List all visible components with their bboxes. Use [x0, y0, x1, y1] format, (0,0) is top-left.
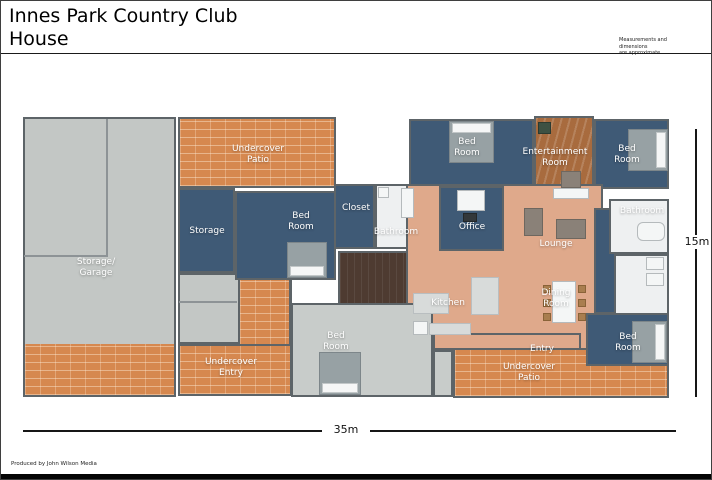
label-bedroom-bottom-middle: Bed Room — [309, 331, 363, 353]
corridor-divider-wall — [179, 301, 237, 303]
chair-icon — [578, 285, 586, 293]
label-entry: Entry — [519, 344, 565, 355]
sofa-icon — [556, 219, 586, 239]
label-bathroom-right: Bathroom — [615, 206, 669, 217]
fridge-icon — [413, 321, 428, 335]
height-dimension-line — [695, 129, 697, 397]
office-chair-icon — [463, 213, 477, 222]
label-bathroom-middle: Bathroom — [369, 227, 423, 238]
kitchen-counter — [429, 323, 471, 335]
label-undercover-patio-top: Undercover Patio — [206, 144, 310, 166]
label-office: Office — [446, 222, 498, 233]
bottom-black-bar — [1, 474, 712, 480]
garage-brick-strip — [25, 344, 174, 395]
label-bedroom-left: Bed Room — [264, 211, 338, 233]
label-bedroom-top-middle: Bed Room — [439, 137, 495, 159]
bathtub-icon — [637, 222, 665, 241]
sideboard-icon — [553, 188, 589, 199]
label-dining-room: Dining Room — [533, 288, 579, 310]
hallway-wood — [338, 251, 408, 309]
bed-icon — [287, 242, 327, 278]
label-bedroom-top-right: Bed Room — [599, 144, 655, 166]
washer-icon — [646, 273, 664, 286]
label-entertainment: Entertainment Room — [513, 147, 597, 169]
label-storage-garage: Storage/ Garage — [41, 257, 151, 279]
label-lounge: Lounge — [530, 239, 582, 250]
page-title: Innes Park Country Club House — [9, 5, 238, 51]
height-dimension-label: 15m — [677, 235, 712, 249]
washer-icon — [646, 257, 664, 270]
room-closet — [334, 184, 375, 249]
porch-gray — [433, 350, 453, 397]
sofa-icon — [524, 208, 543, 236]
label-closet: Closet — [335, 203, 377, 214]
width-dimension-label: 35m — [322, 423, 370, 437]
pantry-counter — [471, 277, 499, 315]
bed-icon — [319, 352, 361, 395]
armchair-icon — [561, 171, 581, 188]
label-undercover-entry: Undercover Entry — [179, 357, 283, 379]
desk-icon — [457, 190, 485, 211]
tv-unit-icon — [538, 122, 551, 134]
label-kitchen: Kitchen — [423, 298, 473, 309]
header-separator — [1, 53, 712, 54]
chair-icon — [578, 299, 586, 307]
floorplan-page: Innes Park Country Club House Measuremen… — [0, 0, 712, 480]
toilet-icon — [378, 187, 389, 198]
garage-interior-wall-v — [106, 119, 108, 257]
chair-icon — [543, 313, 551, 321]
label-undercover-patio-bottom: Undercover Patio — [478, 362, 580, 384]
chair-icon — [578, 313, 586, 321]
producer-credit: Produced by John Wilson Media — [11, 461, 97, 467]
label-storage: Storage — [179, 226, 235, 237]
label-bedroom-bottom-right: Bed Room — [602, 332, 654, 354]
bathtub-icon — [401, 188, 414, 218]
